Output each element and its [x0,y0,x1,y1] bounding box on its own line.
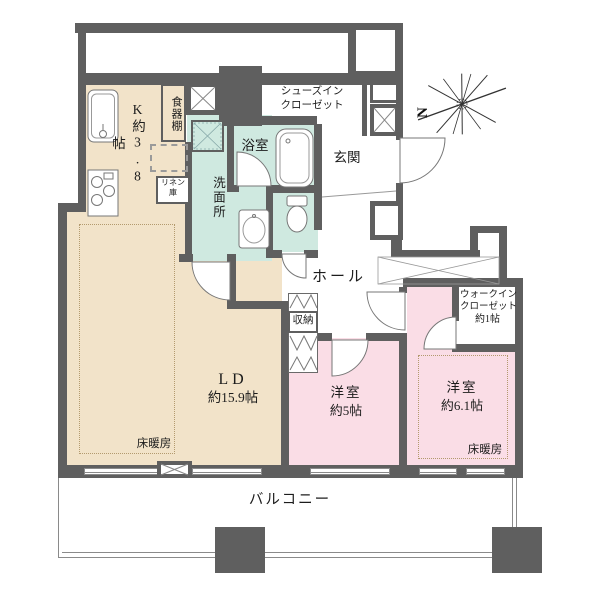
wall [452,287,459,321]
balcony-outline [58,478,517,558]
linen-closet-label-line1: リネン [158,179,188,188]
wall [314,124,322,230]
wall [452,344,515,352]
bathroom-floor [232,124,317,188]
balcony-inner-line [62,552,513,553]
toilet-door-swing [282,254,306,278]
walk-in-closet-label-line1: ウォークイン [460,290,515,300]
wall [266,250,282,258]
toilet-floor [272,191,318,252]
floor-heating-label-bedroom61: 床暖房 [462,444,508,457]
bathroom-label: 浴室 [236,139,274,154]
floor-heating-area-ld [79,224,175,454]
floor-plan: N K約3.8帖 食器棚 リネン 庫 シューズイン クローゼット 浴室 洗面所 … [0,0,600,600]
pipe-shaft-box [370,201,403,240]
wall [179,254,193,262]
wall [227,116,317,125]
entrance-label: 玄関 [325,151,369,166]
wall [362,80,367,136]
pipe-shaft-box [370,104,399,136]
wall [515,287,523,478]
compass-icon: N [411,66,512,141]
entrance-door-swing [400,138,445,183]
walk-in-closet-size: 約1帖 [460,314,515,325]
bedroom61-size: 約6.1帖 [427,399,497,413]
entrance-step-line [322,191,396,197]
bedroom5-size: 約5帖 [318,404,374,418]
dish-cabinet-label: 食器棚 [163,89,184,139]
wall [399,333,407,477]
wall [227,301,288,309]
wall [399,287,407,293]
balcony-pillar [215,527,265,573]
duct-shaft-box [186,82,220,115]
exterior-compartment-box [352,26,399,75]
window [310,468,390,475]
shoes-in-closet-label-line1: シューズイン [263,86,361,98]
balcony-pillar [492,527,542,573]
bedroom61-name: 洋室 [437,381,487,396]
storage-column [288,293,318,373]
meter-box [370,82,399,103]
wall [58,203,67,478]
pipe-space-box [191,120,224,152]
living-dining-size: 約15.9帖 [196,391,270,406]
kitchen-label: K約3.8帖 [121,95,147,193]
wall [391,250,480,257]
wall [266,185,273,258]
shoes-in-closet-label-line2: クローゼット [263,100,361,112]
linen-closet-label-line2: 庫 [158,189,188,198]
walk-in-closet-label-line2: クローゼット [460,302,515,312]
window [419,468,457,475]
window [192,468,262,475]
pillar-box-ld [157,461,192,478]
wall [232,185,239,192]
bedroom61-door-swing [367,292,405,330]
window [466,468,505,475]
window [84,468,158,475]
storage-label: 収納 [289,315,317,327]
wall [366,333,403,341]
wall [227,116,234,192]
wall [304,250,318,258]
compass-north-label: N [415,107,431,118]
refrigerator-space-box [150,144,188,172]
wall [266,185,318,193]
hall-label: ホール [311,269,367,286]
bedroom5-name: 洋室 [321,386,371,401]
wall [499,226,507,285]
floor-heating-label-ld: 床暖房 [131,438,177,451]
wall [78,23,86,210]
wall [318,333,332,341]
balcony-label: バルコニー [240,493,340,509]
living-dining-name: LD [205,371,261,389]
washroom-label: 洗面所 [208,162,228,234]
